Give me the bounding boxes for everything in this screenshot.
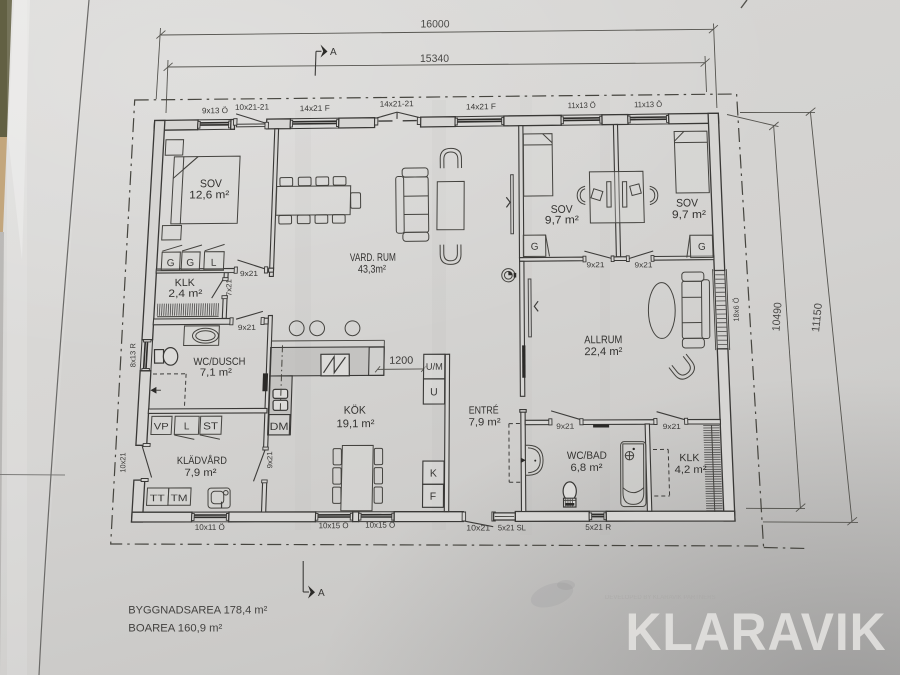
svg-text:VP: VP [154,421,169,432]
svg-text:G: G [698,242,706,253]
svg-text:KLARAVIK: KLARAVIK [626,603,887,662]
svg-text:14x21 F: 14x21 F [300,104,330,113]
svg-text:KÖK: KÖK [344,405,367,417]
svg-text:DM: DM [270,421,289,433]
svg-text:G: G [186,258,194,269]
svg-text:14x21 F: 14x21 F [466,102,496,111]
svg-text:9x21: 9x21 [240,269,258,278]
svg-text:9x21: 9x21 [663,422,681,431]
svg-text:TM: TM [171,493,188,504]
svg-text:G: G [531,242,539,253]
svg-text:F: F [430,491,436,503]
svg-text:A: A [318,588,325,599]
svg-text:5x21 R: 5x21 R [585,523,611,532]
svg-text:L: L [211,258,217,269]
svg-text:KLÄDVÅRD: KLÄDVÅRD [177,454,227,467]
svg-text:4,2 m²: 4,2 m² [675,464,708,476]
svg-text:7,9 m²: 7,9 m² [469,416,502,428]
svg-text:10x21: 10x21 [118,453,127,473]
svg-text:ALLRUM: ALLRUM [584,334,622,346]
svg-text:BYGGNADSAREA 178,4 m²: BYGGNADSAREA 178,4 m² [128,605,267,617]
svg-text:BOAREA 160,9 m²: BOAREA 160,9 m² [128,623,222,635]
svg-text:5x21 SL: 5x21 SL [498,523,527,532]
svg-text:L: L [184,421,190,432]
svg-text:ST: ST [203,421,218,432]
svg-text:7x21: 7x21 [224,279,233,296]
svg-text:10x21-21: 10x21-21 [235,102,270,111]
svg-text:11x13 Ö: 11x13 Ö [568,101,596,110]
svg-text:11150: 11150 [810,303,825,333]
svg-text:6,8 m²: 6,8 m² [570,462,603,474]
svg-text:TT: TT [150,493,165,504]
svg-text:2,4 m²: 2,4 m² [168,288,203,300]
svg-text:1200: 1200 [389,355,413,367]
svg-text:9x21: 9x21 [586,260,604,269]
svg-text:9x21: 9x21 [265,451,274,468]
svg-text:10490: 10490 [771,302,785,332]
svg-text:12,6 m²: 12,6 m² [189,189,229,201]
svg-text:10x21: 10x21 [466,523,491,532]
svg-text:14x21-21: 14x21-21 [380,99,415,108]
svg-text:16000: 16000 [421,19,450,31]
svg-text:15340: 15340 [420,53,449,65]
svg-text:9x13 Ö: 9x13 Ö [202,106,228,115]
svg-text:18x6 Ö: 18x6 Ö [732,297,741,321]
svg-text:11x13 Ö: 11x13 Ö [634,100,662,109]
svg-text:K: K [430,468,437,480]
svg-text:G: G [167,258,175,269]
svg-text:9,7 m²: 9,7 m² [545,214,579,226]
svg-text:19,1 m²: 19,1 m² [336,418,374,430]
svg-text:WC/BAD: WC/BAD [567,450,607,462]
svg-text:SOV: SOV [676,197,699,209]
svg-text:10x15 Ö: 10x15 Ö [365,521,395,530]
svg-text:43,3m²: 43,3m² [358,263,386,275]
svg-text:9,7 m²: 9,7 m² [672,209,706,221]
svg-text:9x21: 9x21 [238,323,256,332]
svg-text:9x21: 9x21 [556,422,574,431]
svg-text:A: A [330,47,337,58]
svg-text:ENTRÉ: ENTRÉ [469,404,499,417]
svg-text:VARD. RUM: VARD. RUM [350,252,396,264]
svg-text:8x13 R: 8x13 R [128,343,137,368]
svg-text:DEVELOPED BY KLARAVIK PARTNERS: DEVELOPED BY KLARAVIK PARTNERS [605,595,716,601]
svg-text:KLK: KLK [679,452,699,464]
svg-text:9x21: 9x21 [634,260,652,269]
svg-text:7,9 m²: 7,9 m² [184,467,217,479]
svg-text:7,1 m²: 7,1 m² [200,367,233,379]
svg-text:U: U [430,386,438,398]
svg-text:10x11 Ö: 10x11 Ö [195,523,225,532]
svg-text:10x15 Ö: 10x15 Ö [319,521,349,530]
svg-text:22,4 m²: 22,4 m² [584,346,622,358]
svg-text:U/M: U/M [426,362,443,373]
